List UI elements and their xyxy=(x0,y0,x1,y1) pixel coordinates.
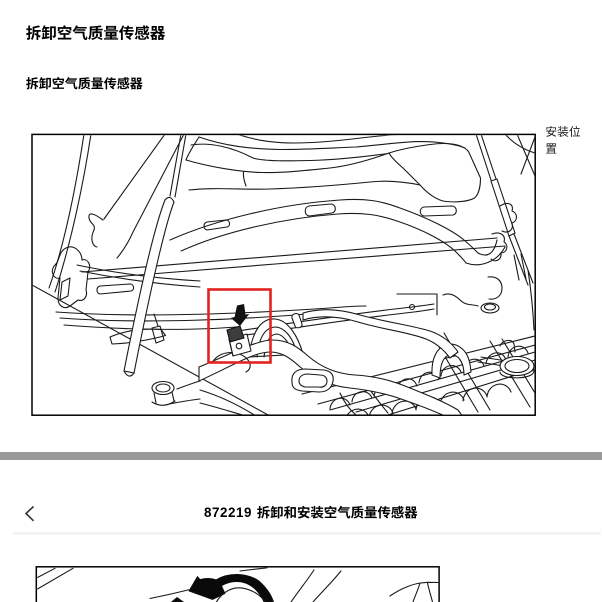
svg-text:872219: 872219 xyxy=(204,505,252,520)
